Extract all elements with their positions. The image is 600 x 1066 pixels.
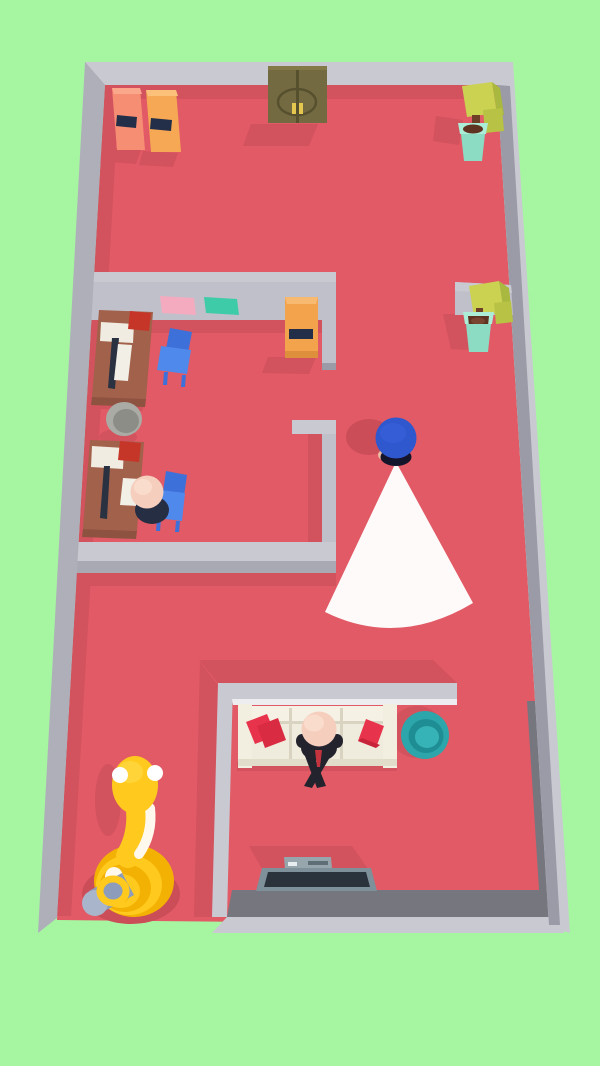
game-stage	[0, 0, 600, 1066]
entrance-door	[268, 66, 327, 123]
desk-upper	[91, 310, 153, 407]
trash-bin	[106, 402, 142, 436]
tv	[256, 868, 377, 891]
pouf-teal	[401, 711, 449, 759]
lounge-wall-top	[218, 683, 457, 705]
locker-red	[112, 88, 145, 150]
office-wall-bottom	[74, 542, 336, 573]
office-wall-stub	[322, 300, 336, 370]
cabinet-orange	[285, 297, 318, 358]
lounge-wall-bottom	[212, 890, 564, 933]
wall-paper-teal	[204, 297, 239, 315]
wall-paper-pink	[160, 296, 196, 315]
locker-orange	[146, 90, 181, 152]
police-officer	[376, 418, 417, 467]
tv-console	[284, 857, 332, 869]
game-canvas[interactable]	[0, 0, 600, 1066]
